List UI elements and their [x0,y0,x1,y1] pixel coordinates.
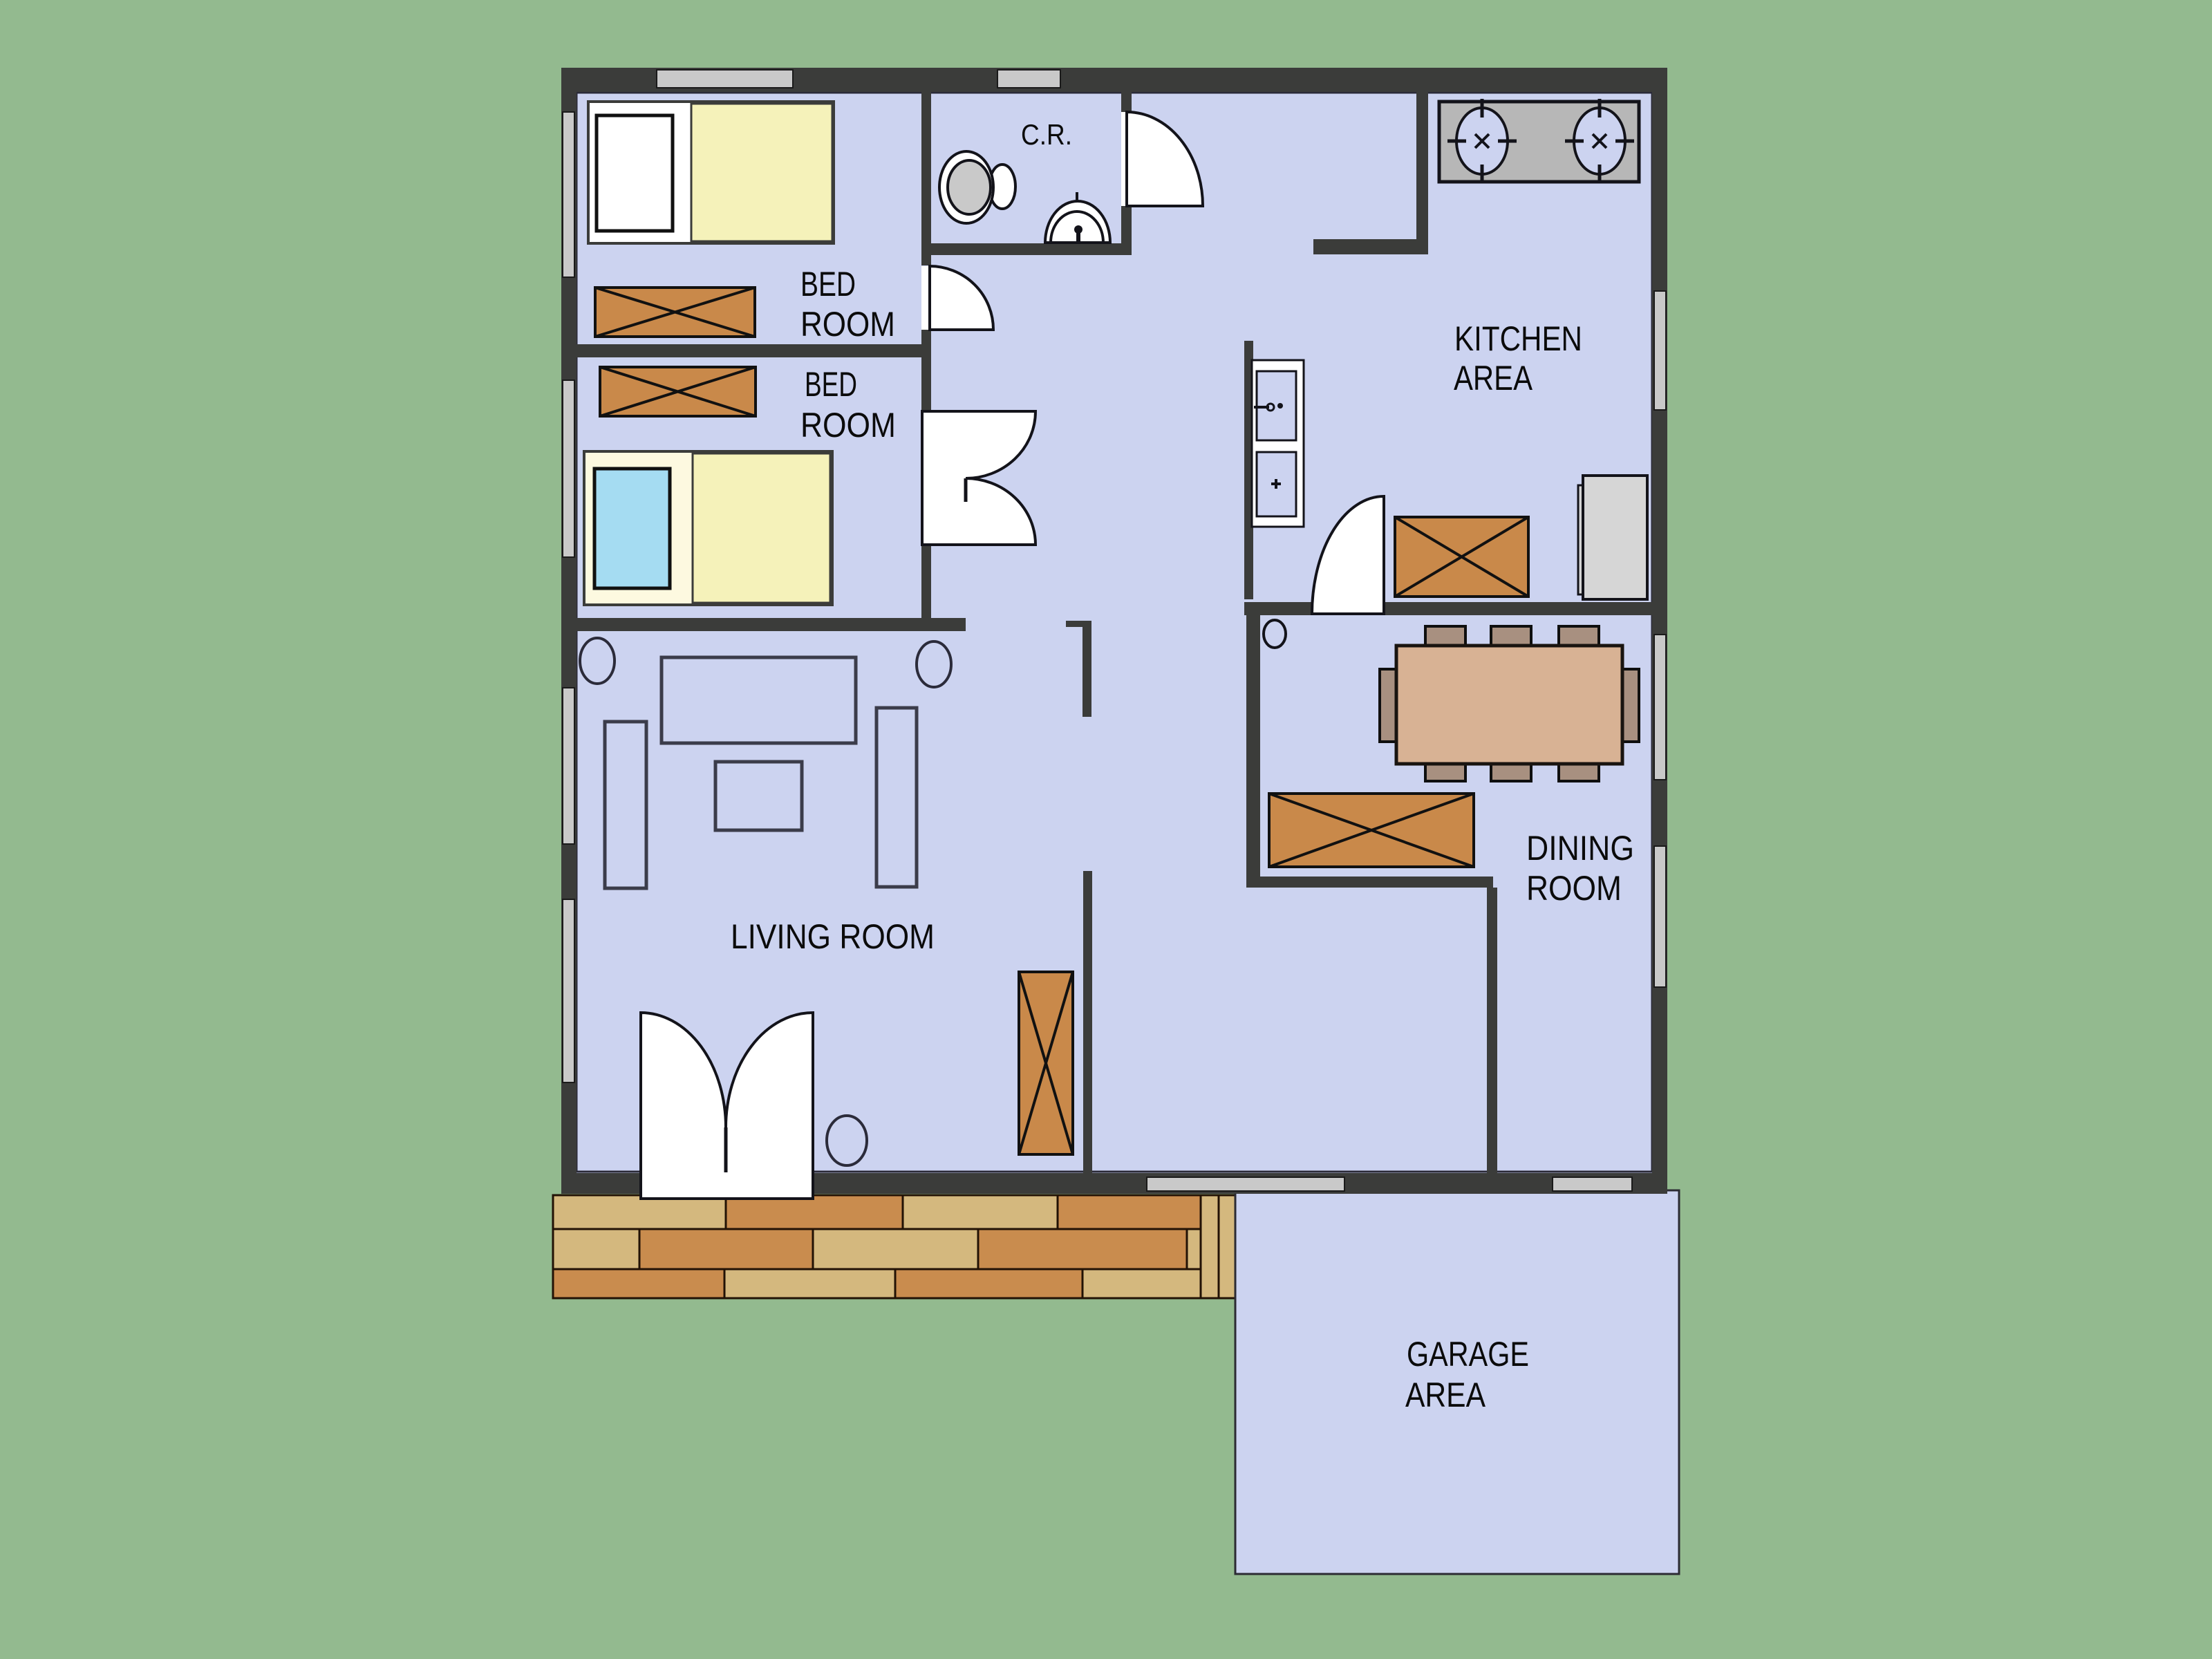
svg-text:AREA: AREA [1454,359,1533,397]
svg-text:ROOM: ROOM [800,305,895,344]
svg-text:GARAGE: GARAGE [1407,1335,1529,1374]
svg-text:C.R.: C.R. [1021,118,1072,151]
svg-text:DINING: DINING [1526,829,1634,868]
svg-text:LIVING ROOM: LIVING ROOM [731,917,935,956]
svg-text:ROOM: ROOM [800,406,896,444]
svg-text:BED: BED [800,265,856,303]
svg-text:ROOM: ROOM [1526,869,1622,908]
svg-text:BED: BED [805,365,857,404]
svg-text:KITCHEN: KITCHEN [1454,319,1582,358]
svg-text:AREA: AREA [1405,1376,1486,1414]
